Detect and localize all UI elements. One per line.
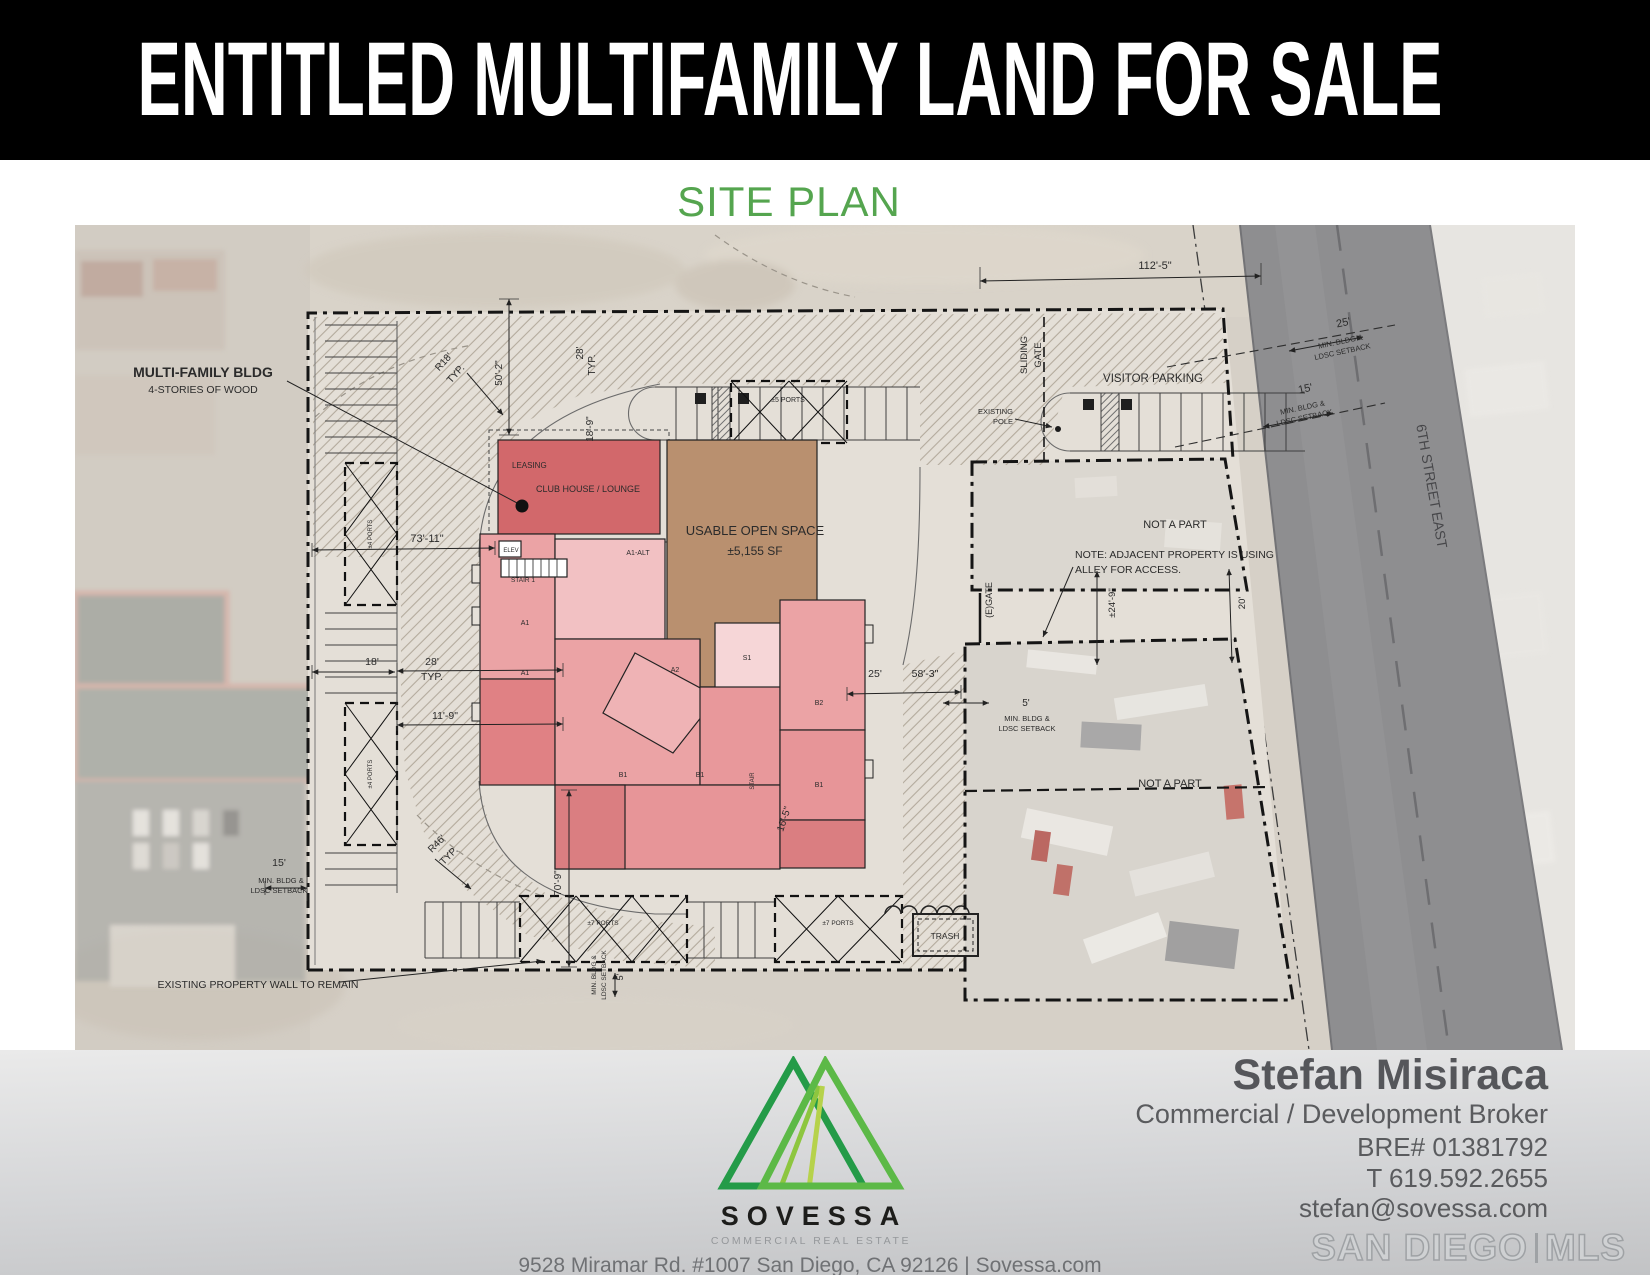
building-leader-dot [516,500,529,513]
plan-label: ±4 PORTS [368,520,374,549]
broker-title: Commercial / Development Broker [1135,1098,1548,1132]
site-plan-image: MULTI-FAMILY BLDG4-STORIES OF WOODR18'TY… [75,225,1575,1050]
plan-label: 5' [1022,698,1030,709]
plan-label: LDSC SETBACK [601,950,608,1000]
plan-label: EXISTING PROPERTY WALL TO REMAIN [158,979,359,991]
plan-label: 18' [365,656,379,668]
plan-label: 73'-11" [410,533,443,545]
plan-label: ±4 PORTS [368,760,374,789]
logo-triangles-icon [715,1056,905,1194]
header-title: ENTITLED MULTIFAMILY LAND FOR SALE [138,21,1443,138]
plan-label: A2 [671,667,680,674]
plan-label: TYP. [587,355,598,376]
plan-label: 25' [868,668,882,680]
plan-label: 11'-9" [432,710,458,722]
plan-label: NOTE: ADJACENT PROPERTY IS USING [1075,549,1274,561]
plan-label: A1 [521,670,530,677]
plan-label: MIN. BLDG & [258,876,303,885]
plan-label: B2 [815,700,824,707]
plan-label: B1 [696,772,705,779]
sovessa-logo: SOVESSA COMMERCIAL REAL ESTATE 9528 Mira… [518,1056,1101,1275]
plan-label: 4-STORIES OF WOOD [148,384,258,396]
existing-pole-dot [1055,426,1061,432]
plan-label: STAIR 1 [511,577,535,584]
plan-label: NOT A PART [1143,519,1207,531]
site-plan-drawing: MULTI-FAMILY BLDG4-STORIES OF WOODR18'TY… [75,225,1575,1050]
plan-label: A1-ALT [626,550,650,557]
plan-label: ±24'-9" [1107,588,1118,617]
plan-label: 15' [272,857,286,869]
plan-label: 112'-5" [1138,260,1171,272]
plan-label: ±7 PORTS [822,920,854,927]
logo-tagline: COMMERCIAL REAL ESTATE [518,1235,1101,1247]
plan-label: MULTI-FAMILY BLDG [133,364,273,380]
broker-name: Stefan Misiraca [1135,1053,1548,1098]
mls-word-left: SAN DIEGO [1311,1227,1528,1269]
flyer-page: ENTITLED MULTIFAMILY LAND FOR SALE SITE … [0,0,1650,1275]
plan-label: ELEV [503,548,518,554]
plan-label: LEASING [512,461,547,470]
san-diego-mls-logo: SAN DIEGO MLS [1311,1227,1626,1269]
broker-email: stefan@sovessa.com [1135,1193,1548,1224]
plan-label: B1 [619,772,628,779]
plan-label: S1 [743,655,752,662]
broker-phone: T 619.592.2655 [1135,1163,1548,1194]
plan-label: 50'-2" [494,360,505,386]
broker-contact-block: Stefan Misiraca Commercial / Development… [1135,1053,1548,1224]
broker-license: BRE# 01381792 [1135,1132,1548,1163]
plan-label: MIN. BLDG & [591,955,598,995]
plan-label: A1 [521,620,530,627]
plan-label: VISITOR PARKING [1103,373,1203,385]
plan-label: ±5 PORTS [771,397,805,404]
plan-label: 28' [425,656,439,668]
header-title-art: ENTITLED MULTIFAMILY LAND FOR SALE [0,0,1650,160]
plan-label: B1 [815,782,824,789]
plan-label: MIN. BLDG & [1004,714,1049,723]
plan-label: TRASH [931,931,960,941]
plan-label: (E)GATE [984,582,994,618]
plan-label: GATE [1033,342,1044,367]
logo-name: SOVESSA [518,1201,1101,1232]
site-plan-heading: SITE PLAN [0,178,1578,226]
plan-label: USABLE OPEN SPACE [686,523,825,538]
plan-label: 18'-9" [585,416,596,442]
plan-label: EXISTING [978,407,1013,416]
plan-label: 28' [575,346,586,359]
plan-label: LDSC SETBACK [998,724,1055,733]
plan-label: ±5,155 SF [727,544,782,558]
plan-label: CLUB HOUSE / LOUNGE [536,484,640,494]
header-banner: ENTITLED MULTIFAMILY LAND FOR SALE [0,0,1650,160]
plan-label: ±7 PORTS [587,920,619,927]
plan-label: NOT A PART [1138,778,1202,790]
plan-label: 58'-3" [912,668,939,680]
mls-word-right: MLS [1545,1227,1626,1269]
plan-label: 20' [1237,597,1248,610]
mls-divider [1535,1233,1538,1263]
plan-label: POLE [993,417,1013,426]
footer: SOVESSA COMMERCIAL REAL ESTATE 9528 Mira… [0,1050,1650,1275]
plan-label: ALLEY FOR ACCESS. [1075,564,1181,576]
plan-label: STAIR [750,772,756,790]
plan-label: TYP. [421,671,443,683]
plan-label: 70'-9" [553,870,564,896]
plan-label: 5' [615,973,625,980]
plan-label: SLIDING [1019,336,1030,374]
address-line: 9528 Miramar Rd. #1007 San Diego, CA 921… [518,1254,1101,1275]
plan-label: LDSC SETBACK [250,886,307,895]
